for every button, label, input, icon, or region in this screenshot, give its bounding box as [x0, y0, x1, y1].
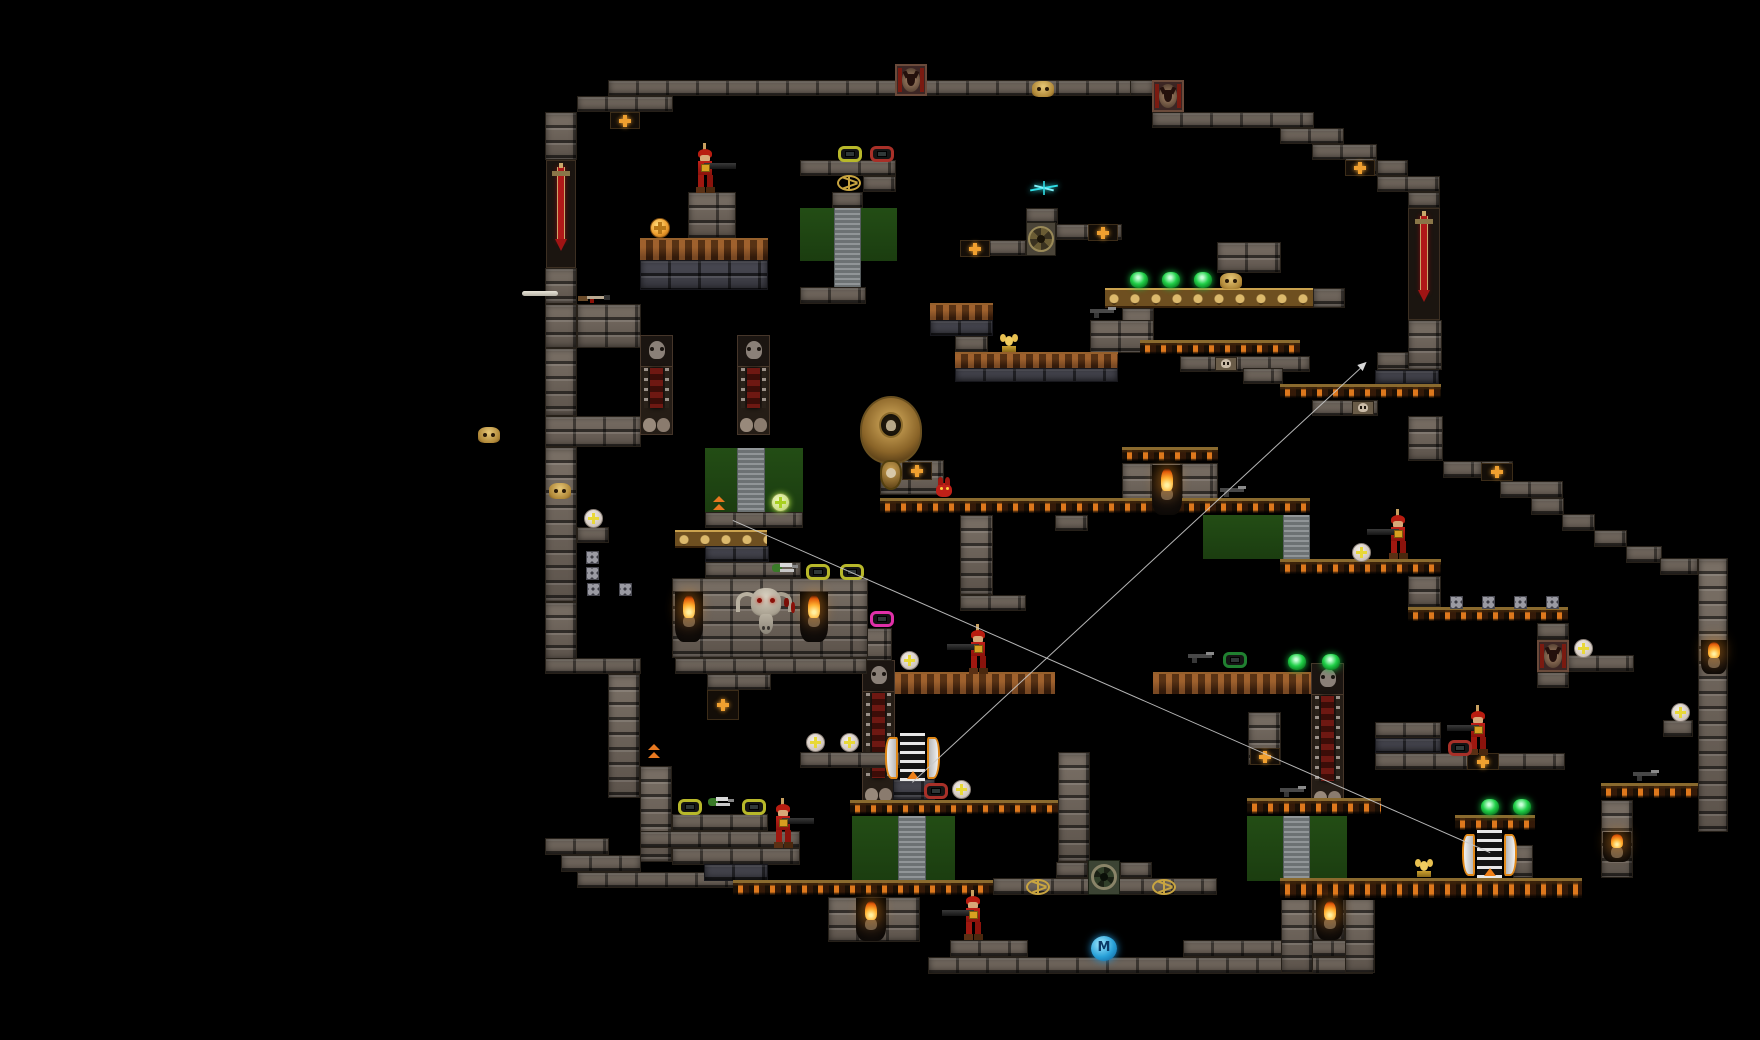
gem-red[interactable]: [1448, 740, 1472, 756]
goat-emblem-tile: [1537, 640, 1569, 672]
platform-brick: [545, 838, 609, 855]
vent-block: [586, 551, 599, 564]
platform-brick: [1055, 515, 1088, 531]
health-orb[interactable]: [900, 651, 919, 670]
platform-skull-band: [1247, 798, 1381, 816]
health-orb[interactable]: [584, 509, 603, 528]
platform-skull-band: [850, 800, 1065, 816]
health-cross-tile[interactable]: [1088, 224, 1118, 241]
platform-brick: [1183, 940, 1371, 957]
platform-brick: [1500, 481, 1563, 498]
door-column: [737, 448, 765, 512]
torch: [1316, 898, 1343, 940]
platform-brick: [545, 348, 577, 416]
vent-block: [587, 583, 600, 596]
platform-brick: [608, 80, 1136, 96]
platform-brick: [1537, 672, 1569, 688]
weapon-blaster[interactable]: [706, 796, 738, 808]
torch: [1152, 465, 1182, 515]
jump-pad[interactable]: [885, 733, 940, 783]
platform-skull-band: [1408, 607, 1568, 623]
blood-splatter: [782, 598, 798, 616]
platform-brick: [1663, 720, 1693, 737]
column-ornate: [737, 335, 770, 435]
platform-brick: [800, 287, 866, 304]
vent-block: [1546, 596, 1559, 609]
platform-brick: [800, 160, 896, 176]
platform-brick: [1698, 558, 1728, 832]
weapon-rifle[interactable]: [1090, 307, 1122, 319]
door-column: [834, 208, 861, 292]
torch: [1701, 640, 1727, 674]
platform-brick: [1377, 352, 1409, 370]
platform-brick: [1408, 416, 1443, 461]
gem-green[interactable]: [1130, 272, 1148, 288]
weapon-blaster[interactable]: [770, 562, 802, 574]
green-door: [1203, 515, 1284, 559]
torch: [1603, 832, 1631, 862]
vent-block: [1514, 596, 1527, 609]
platform-brick: [577, 527, 609, 543]
sword-banner: [546, 160, 576, 268]
vent-block: [1450, 596, 1463, 609]
gem-yellow[interactable]: [806, 564, 830, 580]
platform-brick: [545, 416, 641, 447]
door-column: [1283, 515, 1310, 559]
enemy-soldier[interactable]: [963, 627, 993, 674]
gold-idol[interactable]: [1413, 859, 1435, 878]
platform-brick: [608, 674, 640, 798]
gem-green[interactable]: [1162, 272, 1180, 288]
pentagram-rune: [1024, 879, 1053, 896]
gold-skull-ornament: [1220, 273, 1242, 289]
platform-gold-skull: [1105, 288, 1313, 308]
platform-brick: [577, 96, 673, 112]
platform-brick: [545, 304, 577, 348]
platform-brick: [545, 658, 641, 674]
platform-brick-dark: [705, 546, 769, 562]
gem-yellow[interactable]: [678, 799, 702, 815]
gem-darkgreen[interactable]: [1223, 652, 1247, 668]
health-orb[interactable]: [840, 733, 859, 752]
enemy-soldier[interactable]: [1383, 512, 1413, 559]
platform-brick: [955, 336, 988, 352]
platform-brick: [960, 595, 1026, 611]
gem-green[interactable]: [1513, 799, 1531, 815]
vent-block: [619, 583, 632, 596]
platform-brick-dark: [640, 260, 768, 290]
platform-skull-band: [1280, 384, 1441, 400]
platform-brick: [1243, 368, 1283, 384]
platform-brick: [672, 848, 800, 865]
pentagram-rune: [835, 175, 864, 192]
gem-green[interactable]: [1194, 272, 1212, 288]
platform-brick: [675, 658, 867, 674]
teleporter-ball[interactable]: M: [1091, 936, 1117, 961]
torch: [675, 592, 703, 642]
platform-rust: [895, 672, 1055, 694]
health-cross-tile[interactable]: [960, 240, 990, 257]
torch: [800, 592, 828, 642]
weapon-shotgun[interactable]: [578, 293, 610, 305]
platform-brick-dark: [704, 864, 768, 881]
platform-brick: [950, 940, 1028, 957]
enemy-soldier[interactable]: [958, 893, 988, 940]
platform-brick: [1375, 722, 1441, 738]
enemy-imp[interactable]: [933, 477, 955, 499]
platform-brick: [1058, 752, 1090, 862]
vent-block: [1482, 596, 1495, 609]
platform-brick: [545, 268, 577, 304]
platform-brick: [545, 602, 577, 660]
health-cross-tile[interactable]: [610, 112, 640, 129]
health-orb[interactable]: [952, 780, 971, 799]
weapon-rifle[interactable]: [1633, 770, 1665, 782]
platform-skull-band: [1122, 447, 1218, 463]
platform-brick-dark: [1375, 370, 1439, 384]
platform-brick: [1056, 862, 1088, 878]
gem-magenta[interactable]: [870, 611, 894, 627]
bone: [522, 290, 558, 298]
sparkle-cyan: [1030, 180, 1058, 196]
platform-brick: [1280, 128, 1344, 144]
platform-brick: [1408, 576, 1441, 607]
platform-brick: [705, 512, 803, 528]
platform-brick: [1313, 288, 1345, 308]
platform-brick: [1345, 897, 1375, 973]
platform-brick-dark: [930, 320, 993, 336]
enemy-soldier[interactable]: [690, 146, 720, 193]
platform-brick: [1562, 514, 1595, 531]
platform-brick: [1152, 112, 1314, 128]
health-cross-tile[interactable]: [707, 690, 739, 720]
goat-emblem-tile: [895, 64, 927, 96]
platform-rust: [640, 238, 768, 260]
gem-yellow[interactable]: [742, 799, 766, 815]
health-orb[interactable]: [1574, 639, 1593, 658]
gem-yellow[interactable]: [838, 146, 862, 162]
platform-brick: [577, 304, 641, 348]
health-orb[interactable]: [1671, 703, 1690, 722]
sword-banner: [1408, 208, 1440, 320]
platform-brick: [832, 192, 863, 208]
health-cross-tile[interactable]: [1250, 748, 1280, 765]
platform-skull-band: [880, 498, 1310, 515]
porthole-tile: [1088, 860, 1120, 895]
platform-brick: [1660, 558, 1698, 575]
gold-idol[interactable]: [998, 334, 1020, 353]
platform-rust: [955, 352, 1118, 368]
platform-brick: [1217, 242, 1281, 273]
jump-pad[interactable]: [1462, 830, 1517, 880]
gem-red[interactable]: [870, 146, 894, 162]
platform-skull-band: [1280, 878, 1582, 900]
platform-brick-dark: [955, 368, 1118, 382]
gem-red[interactable]: [924, 783, 948, 799]
weapon-rifle[interactable]: [1188, 652, 1220, 664]
torch: [856, 898, 886, 941]
level-map: M: [0, 0, 1760, 1040]
platform-brick: [960, 515, 993, 595]
vent-block: [586, 567, 599, 580]
platform-skull-band: [1601, 783, 1698, 800]
gold-skull-ornament: [549, 483, 571, 499]
enemy-soldier[interactable]: [768, 801, 798, 848]
health-orb-green[interactable]: [771, 493, 790, 512]
gem-green[interactable]: [1322, 654, 1340, 670]
pentagram-rune: [1150, 879, 1179, 896]
goat-emblem-tile: [1152, 80, 1184, 112]
platform-brick: [672, 814, 768, 831]
platform-brick: [1537, 623, 1569, 640]
gold-skull-ornament: [478, 427, 500, 443]
gear-tile: [1026, 222, 1056, 256]
door-column: [1283, 816, 1310, 881]
door-column: [898, 816, 926, 880]
platform-brick: [1120, 862, 1152, 878]
platform-brick: [1377, 160, 1408, 176]
platform-rust: [1153, 672, 1311, 694]
up-arrows: [711, 496, 727, 511]
platform-brick: [545, 447, 577, 602]
platform-skull-band: [1140, 340, 1300, 356]
platform-brick: [1408, 320, 1442, 370]
platform-brick: [688, 192, 736, 238]
platform-brick: [1531, 498, 1564, 515]
gold-serpent-emblem: [860, 396, 922, 498]
platform-brick: [1626, 546, 1662, 563]
skull-face-tile: [1215, 357, 1237, 371]
health-orb[interactable]: [806, 733, 825, 752]
platform-brick: [1130, 80, 1154, 96]
platform-brick-dark: [1375, 738, 1441, 753]
gold-skull-ornament: [1032, 81, 1054, 97]
gem-green[interactable]: [1481, 799, 1499, 815]
health-cross-tile[interactable]: [1481, 463, 1513, 481]
platform-brick: [1377, 176, 1440, 192]
weapon-rifle[interactable]: [1280, 786, 1312, 798]
platform-rust: [930, 303, 993, 320]
platform-brick: [1443, 461, 1482, 478]
platform-brick: [561, 855, 641, 872]
platform-brick: [1281, 897, 1313, 973]
platform-brick: [863, 176, 896, 192]
up-arrows: [646, 744, 662, 759]
health-cross-tile[interactable]: [1345, 160, 1375, 176]
column-ornate: [640, 335, 673, 435]
platform-brick: [707, 674, 771, 690]
health-orb[interactable]: [1352, 543, 1371, 562]
coin[interactable]: [650, 218, 670, 238]
platform-brick: [1594, 530, 1627, 547]
skull-face-tile: [1352, 401, 1374, 415]
platform-brick: [1408, 192, 1440, 208]
gem-green[interactable]: [1288, 654, 1306, 670]
platform-brick: [545, 112, 577, 160]
